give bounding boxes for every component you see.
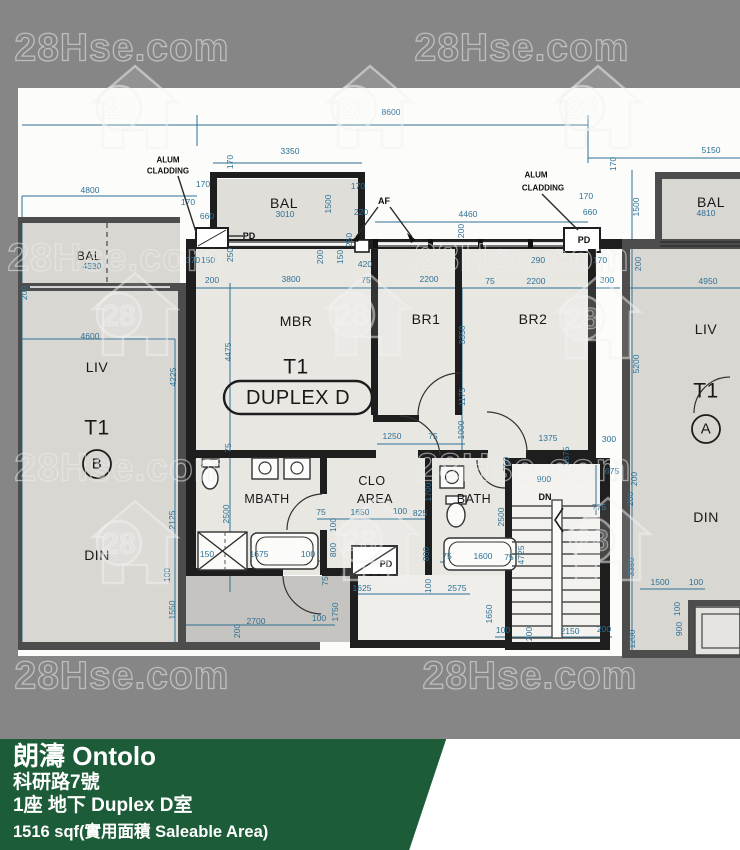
- dim-label: 1500: [323, 194, 333, 213]
- dim-label: 220: [354, 207, 368, 217]
- room-label: T1: [84, 417, 110, 440]
- dim-label: 2500: [221, 504, 231, 523]
- dim-label: 1550: [167, 600, 177, 619]
- dim-label: 1000: [456, 420, 466, 439]
- dim-label: 2150: [561, 626, 580, 636]
- dim-label: 170: [351, 181, 365, 191]
- plan-annotation: DN: [539, 492, 552, 502]
- unit-info: 1座 地下 Duplex D室: [13, 794, 268, 818]
- dim-label: 2500: [496, 507, 506, 526]
- dim-label: 4725: [516, 545, 526, 564]
- area-info: 1516 sqf(實用面積 Saleable Area): [13, 820, 268, 844]
- dim-label: 2125: [167, 510, 177, 529]
- dim-label: 75: [504, 552, 514, 562]
- dim-label: 170: [579, 191, 593, 201]
- plan-annotation: CLADDING: [522, 184, 564, 193]
- dim-label: 3350: [281, 146, 300, 156]
- dim-label: 75: [442, 551, 452, 561]
- dim-label: 100: [312, 613, 326, 623]
- room-label: MBR: [280, 313, 313, 329]
- dim-label: 170: [608, 157, 618, 171]
- dim-label: 420: [358, 259, 372, 269]
- dim-label: 1200: [627, 629, 637, 648]
- plan-annotation: ALUM: [524, 171, 547, 180]
- watermark-text: 28Hse.com: [15, 447, 230, 490]
- dim-label: 5150: [702, 145, 721, 155]
- dim-label: 1750: [330, 602, 340, 621]
- dim-label: 825: [413, 508, 427, 518]
- dim-label: 200: [597, 624, 611, 634]
- dim-label: 100: [689, 577, 703, 587]
- dim-label: 100: [496, 625, 510, 635]
- dim-label: 250: [225, 248, 235, 262]
- dim-label: 200: [19, 286, 29, 300]
- dim-label: 3800: [282, 274, 301, 284]
- property-info: 朗濤 Ontolo 科研路7號 1座 地下 Duplex D室 1516 sqf…: [13, 741, 268, 844]
- room-label: A: [701, 421, 712, 438]
- floorplan-image: 28: [0, 0, 740, 850]
- room-label: LIV: [695, 321, 718, 337]
- room-label: DIN: [693, 509, 719, 525]
- dim-label: 4475: [223, 342, 233, 361]
- watermark-text: 28Hse.com: [415, 27, 630, 70]
- watermark-text: 28Hse.com: [415, 237, 630, 280]
- dim-label: 1625: [353, 583, 372, 593]
- dim-label: 1250: [383, 431, 402, 441]
- dim-label: 200: [315, 250, 325, 264]
- dim-label: 1650: [484, 604, 494, 623]
- dim-label: 2575: [448, 583, 467, 593]
- dim-label: 1500: [631, 197, 641, 216]
- dim-label: 1600: [474, 551, 493, 561]
- dim-label: 1675: [250, 549, 269, 559]
- dim-label: 4800: [81, 185, 100, 195]
- dim-label: 660: [583, 207, 597, 217]
- dim-label: 4950: [699, 276, 718, 286]
- dim-label: 75: [316, 507, 326, 517]
- room-label: BR1: [412, 311, 441, 327]
- dim-label: 900: [674, 622, 684, 636]
- dim-label: 75: [428, 431, 438, 441]
- dim-label: 1375: [539, 433, 558, 443]
- plan-annotation: CLADDING: [147, 167, 189, 176]
- plan-annotation: PD: [243, 231, 256, 241]
- dim-label: 660: [200, 211, 214, 221]
- dim-label: 5200: [631, 354, 641, 373]
- room-label: BAL: [270, 195, 298, 211]
- dim-label: 150: [200, 549, 214, 559]
- dim-label: 100: [328, 518, 338, 532]
- room-label: T1: [693, 380, 719, 403]
- room-label: T1: [283, 356, 309, 379]
- building-name: 朗濤 Ontolo: [13, 741, 268, 771]
- plan-annotation: ALUM: [156, 156, 179, 165]
- dim-label: 75: [320, 576, 330, 586]
- dim-label: 1175: [457, 388, 467, 407]
- dim-label: 250: [344, 233, 354, 247]
- dim-label: 170: [181, 197, 195, 207]
- room-label: BAL: [697, 194, 725, 210]
- dim-label: 100: [672, 602, 682, 616]
- dim-label: 200: [524, 627, 534, 641]
- watermark-text: 28Hse.com: [423, 655, 638, 698]
- dim-label: 4600: [81, 331, 100, 341]
- watermark-text: 28Hse.com: [15, 27, 230, 70]
- dim-label: 800: [328, 543, 338, 557]
- dim-label: 170: [225, 155, 235, 169]
- plan-annotation: AF: [378, 196, 390, 206]
- info-bar: 朗濤 Ontolo 科研路7號 1座 地下 Duplex D室 1516 sqf…: [0, 739, 740, 850]
- dim-label: 200: [232, 624, 242, 638]
- dim-label: 1500: [651, 577, 670, 587]
- dim-label: 100: [301, 549, 315, 559]
- dim-label: 2700: [247, 616, 266, 626]
- dim-label: 100: [423, 579, 433, 593]
- dim-label: 4460: [459, 209, 478, 219]
- dim-label: 300: [602, 434, 616, 444]
- dim-label: 200: [625, 492, 635, 506]
- room-label: LIV: [86, 359, 109, 375]
- dim-label: 3350: [457, 325, 467, 344]
- watermark-text: 28Hse.com: [417, 447, 632, 490]
- address: 科研路7號: [13, 771, 268, 794]
- room-label: DUPLEX D: [246, 387, 350, 409]
- dim-label: 170: [196, 179, 210, 189]
- watermark-text: 28Hse.com: [15, 655, 230, 698]
- room-label: BATH: [457, 492, 491, 506]
- floorplan-page: 28: [0, 0, 740, 850]
- dim-label: 4225: [168, 367, 178, 386]
- room-label: CLO: [358, 474, 385, 488]
- dim-label: 800: [421, 547, 431, 561]
- dim-label: 150: [335, 250, 345, 264]
- dim-label: 200: [633, 257, 643, 271]
- watermark-text: 28Hse.com: [8, 237, 223, 280]
- room-label: BR2: [519, 311, 548, 327]
- room-label: MBATH: [244, 492, 289, 506]
